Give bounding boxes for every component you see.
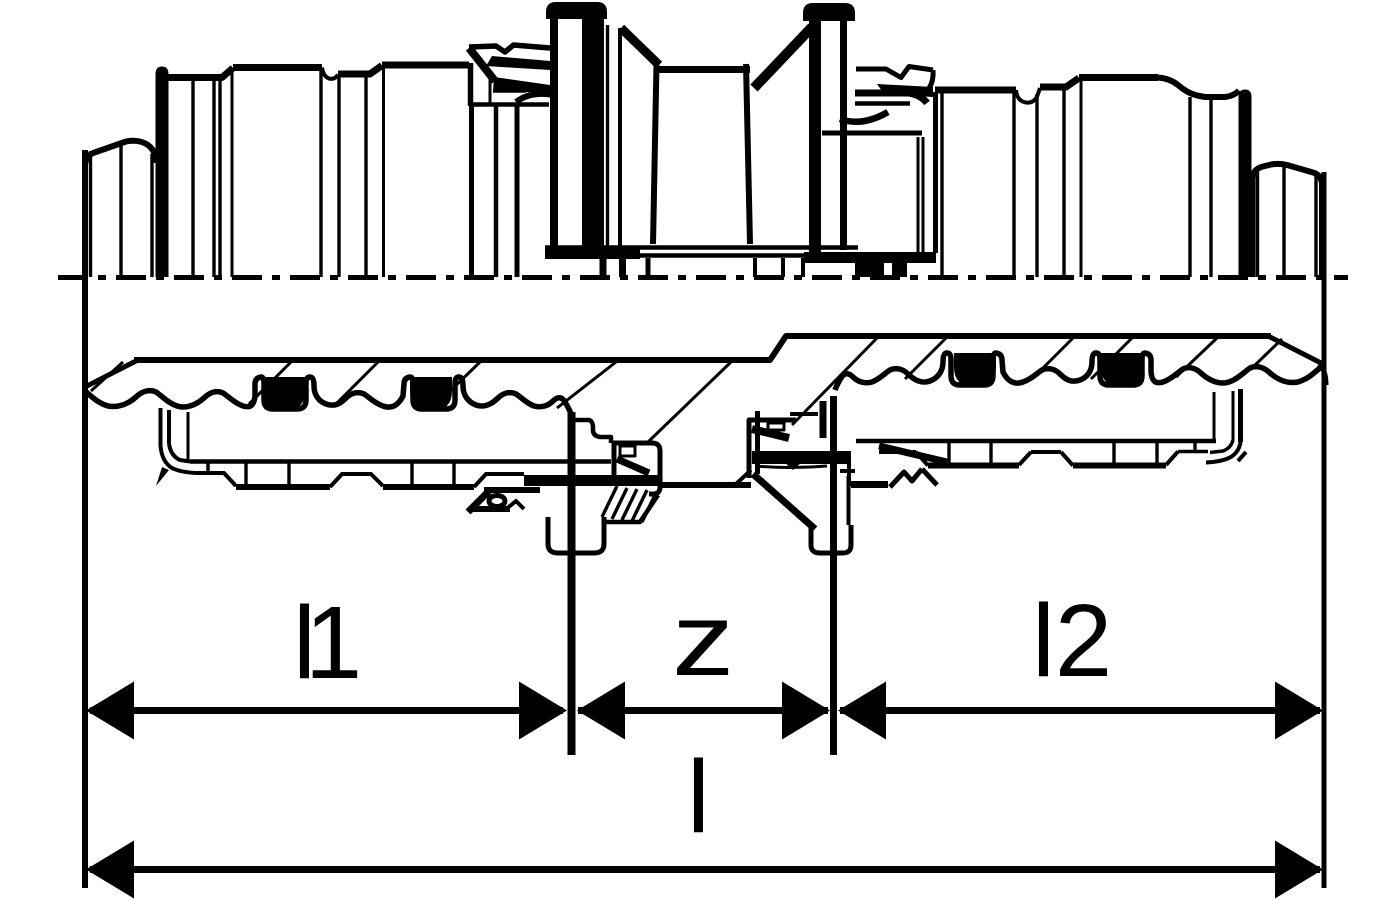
svg-text:l2: l2 (1032, 583, 1112, 698)
svg-text:z: z (672, 583, 734, 697)
svg-text:l1: l1 (293, 585, 362, 700)
svg-text:l: l (687, 739, 710, 854)
